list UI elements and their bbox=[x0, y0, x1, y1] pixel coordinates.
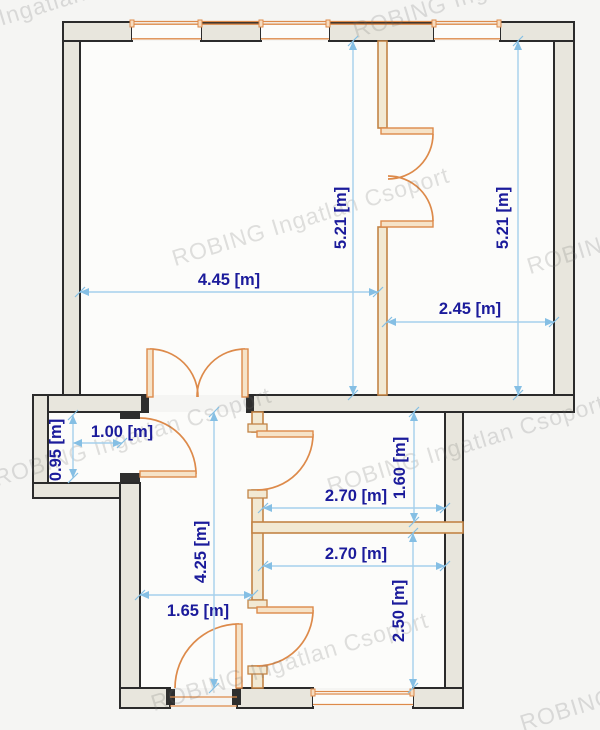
floor-plan-drawing: ROBING Ingatlan Csoport ROBING Ingatlan … bbox=[0, 0, 600, 730]
dim-label: 5.21 [m] bbox=[332, 187, 350, 249]
window-tick bbox=[198, 20, 202, 27]
door-leaf bbox=[257, 431, 313, 437]
window-top-3 bbox=[434, 25, 500, 40]
partition-large-room-upper bbox=[378, 41, 387, 128]
door-leaf bbox=[140, 471, 196, 477]
partition-cap bbox=[248, 490, 267, 498]
dim-label: 0.95 [m] bbox=[47, 419, 65, 481]
window-tick bbox=[130, 20, 134, 27]
door-leaf bbox=[147, 349, 153, 397]
dim-label: 2.70 [m] bbox=[325, 545, 387, 563]
wall-left bbox=[63, 22, 80, 412]
partition-hall-segment bbox=[252, 490, 263, 600]
door-jamb bbox=[120, 411, 140, 419]
window-top-2 bbox=[261, 25, 329, 40]
window-tick bbox=[311, 689, 315, 696]
window-tick bbox=[432, 20, 436, 27]
window-top-1 bbox=[132, 25, 201, 40]
window-glass-line bbox=[132, 22, 500, 25]
wall-mid-left bbox=[33, 395, 148, 412]
dim-label: 2.50 [m] bbox=[390, 580, 408, 642]
door-jamb bbox=[120, 473, 140, 482]
door-leaf bbox=[381, 128, 433, 134]
wall-right bbox=[554, 22, 574, 412]
dim-label: 4.25 [m] bbox=[192, 521, 210, 583]
door-leaf bbox=[257, 607, 313, 613]
floor-plan-page: ROBING Ingatlan Csoport ROBING Ingatlan … bbox=[0, 0, 600, 730]
wall-mid-right bbox=[247, 395, 574, 412]
dim-label: 1.00 [m] bbox=[91, 423, 153, 441]
window-tick bbox=[259, 20, 263, 27]
window-tick bbox=[326, 20, 330, 27]
dim-label: 4.45 [m] bbox=[198, 271, 260, 289]
dim-label: 5.21 [m] bbox=[494, 187, 512, 249]
dim-label: 2.45 [m] bbox=[439, 300, 501, 318]
door-jamb bbox=[141, 396, 149, 411]
wall-top-segment bbox=[63, 22, 132, 41]
dim-label: 2.70 [m] bbox=[325, 487, 387, 505]
dimension-niche-depth: 0.95 [m] bbox=[47, 410, 78, 483]
wall-top-segment bbox=[201, 23, 261, 41]
partition-horizontal bbox=[252, 522, 463, 533]
wall-bottom-segment bbox=[237, 688, 313, 708]
wall-bottom-segment bbox=[413, 688, 463, 708]
dim-label: 1.65 [m] bbox=[167, 602, 229, 620]
watermark-text: ROBING Ingatlan Csoport bbox=[517, 627, 600, 730]
wall-top-segment bbox=[500, 22, 574, 41]
wall-lower-left bbox=[120, 483, 140, 708]
dim-label: 1.60 [m] bbox=[391, 437, 409, 499]
partition-large-room-lower bbox=[378, 227, 387, 395]
window-bottom bbox=[313, 690, 413, 706]
door-leaf bbox=[381, 221, 433, 227]
window-tick bbox=[497, 20, 501, 27]
